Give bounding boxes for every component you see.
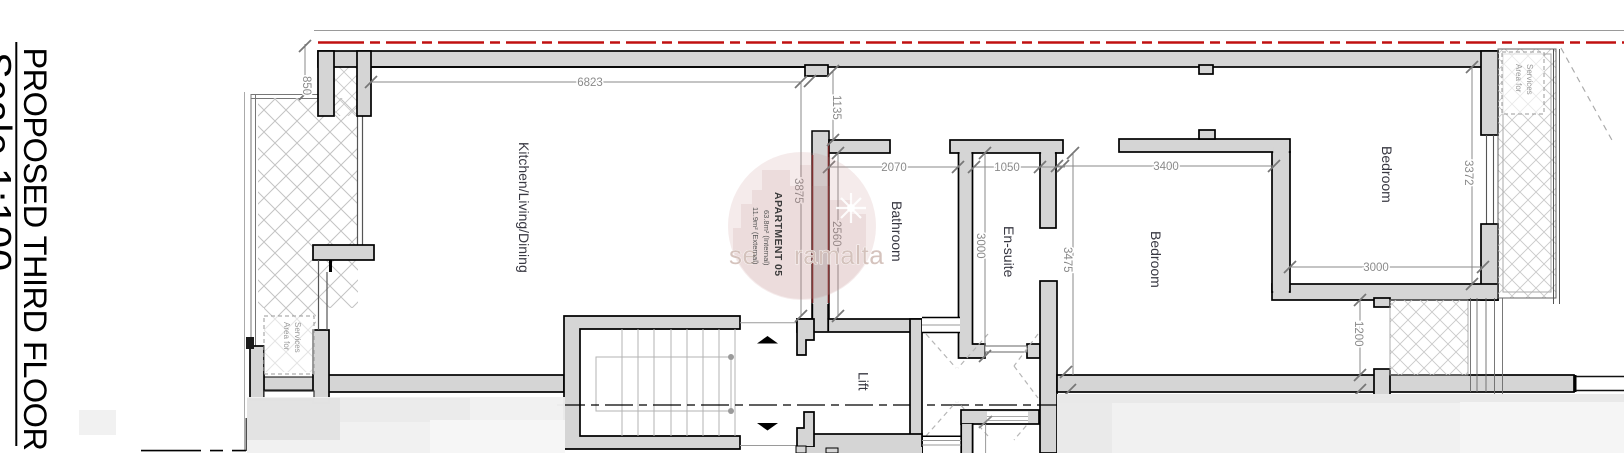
svg-text:2070: 2070 [881,162,907,174]
svg-text:Services: Services [293,322,302,353]
svg-text:Bedroom: Bedroom [1379,146,1395,203]
svg-text:1135: 1135 [830,95,842,120]
svg-text:Lift: Lift [856,372,872,391]
svg-text:Area for: Area for [1514,64,1523,93]
svg-text:Kitchen/Living/Dining: Kitchen/Living/Dining [516,142,532,273]
svg-text:Services: Services [1525,64,1534,95]
svg-text:3000: 3000 [974,233,986,259]
svg-text:APARTMENT 05: APARTMENT 05 [772,192,784,277]
svg-text:En-suite: En-suite [1001,226,1017,278]
svg-text:3000: 3000 [1363,262,1389,274]
svg-text:11.9m² (External): 11.9m² (External) [751,207,760,265]
svg-text:Bathroom: Bathroom [889,201,905,262]
svg-text:ramalta: ramalta [794,240,884,270]
svg-text:Bedroom: Bedroom [1148,231,1164,288]
svg-text:3400: 3400 [1153,161,1179,173]
svg-text:63.8m² (Internal): 63.8m² (Internal) [762,210,771,266]
svg-text:Area for: Area for [282,322,291,351]
svg-text:3372: 3372 [1462,160,1474,186]
svg-text:6823: 6823 [577,77,603,89]
svg-text:Scale 1:100: Scale 1:100 [0,52,19,272]
svg-text:1200: 1200 [1352,321,1364,347]
svg-text:850: 850 [300,76,312,95]
svg-text:3475: 3475 [1061,247,1073,273]
svg-text:PROPOSED THIRD FLOOR: PROPOSED THIRD FLOOR [17,48,53,451]
svg-text:1050: 1050 [994,162,1020,174]
